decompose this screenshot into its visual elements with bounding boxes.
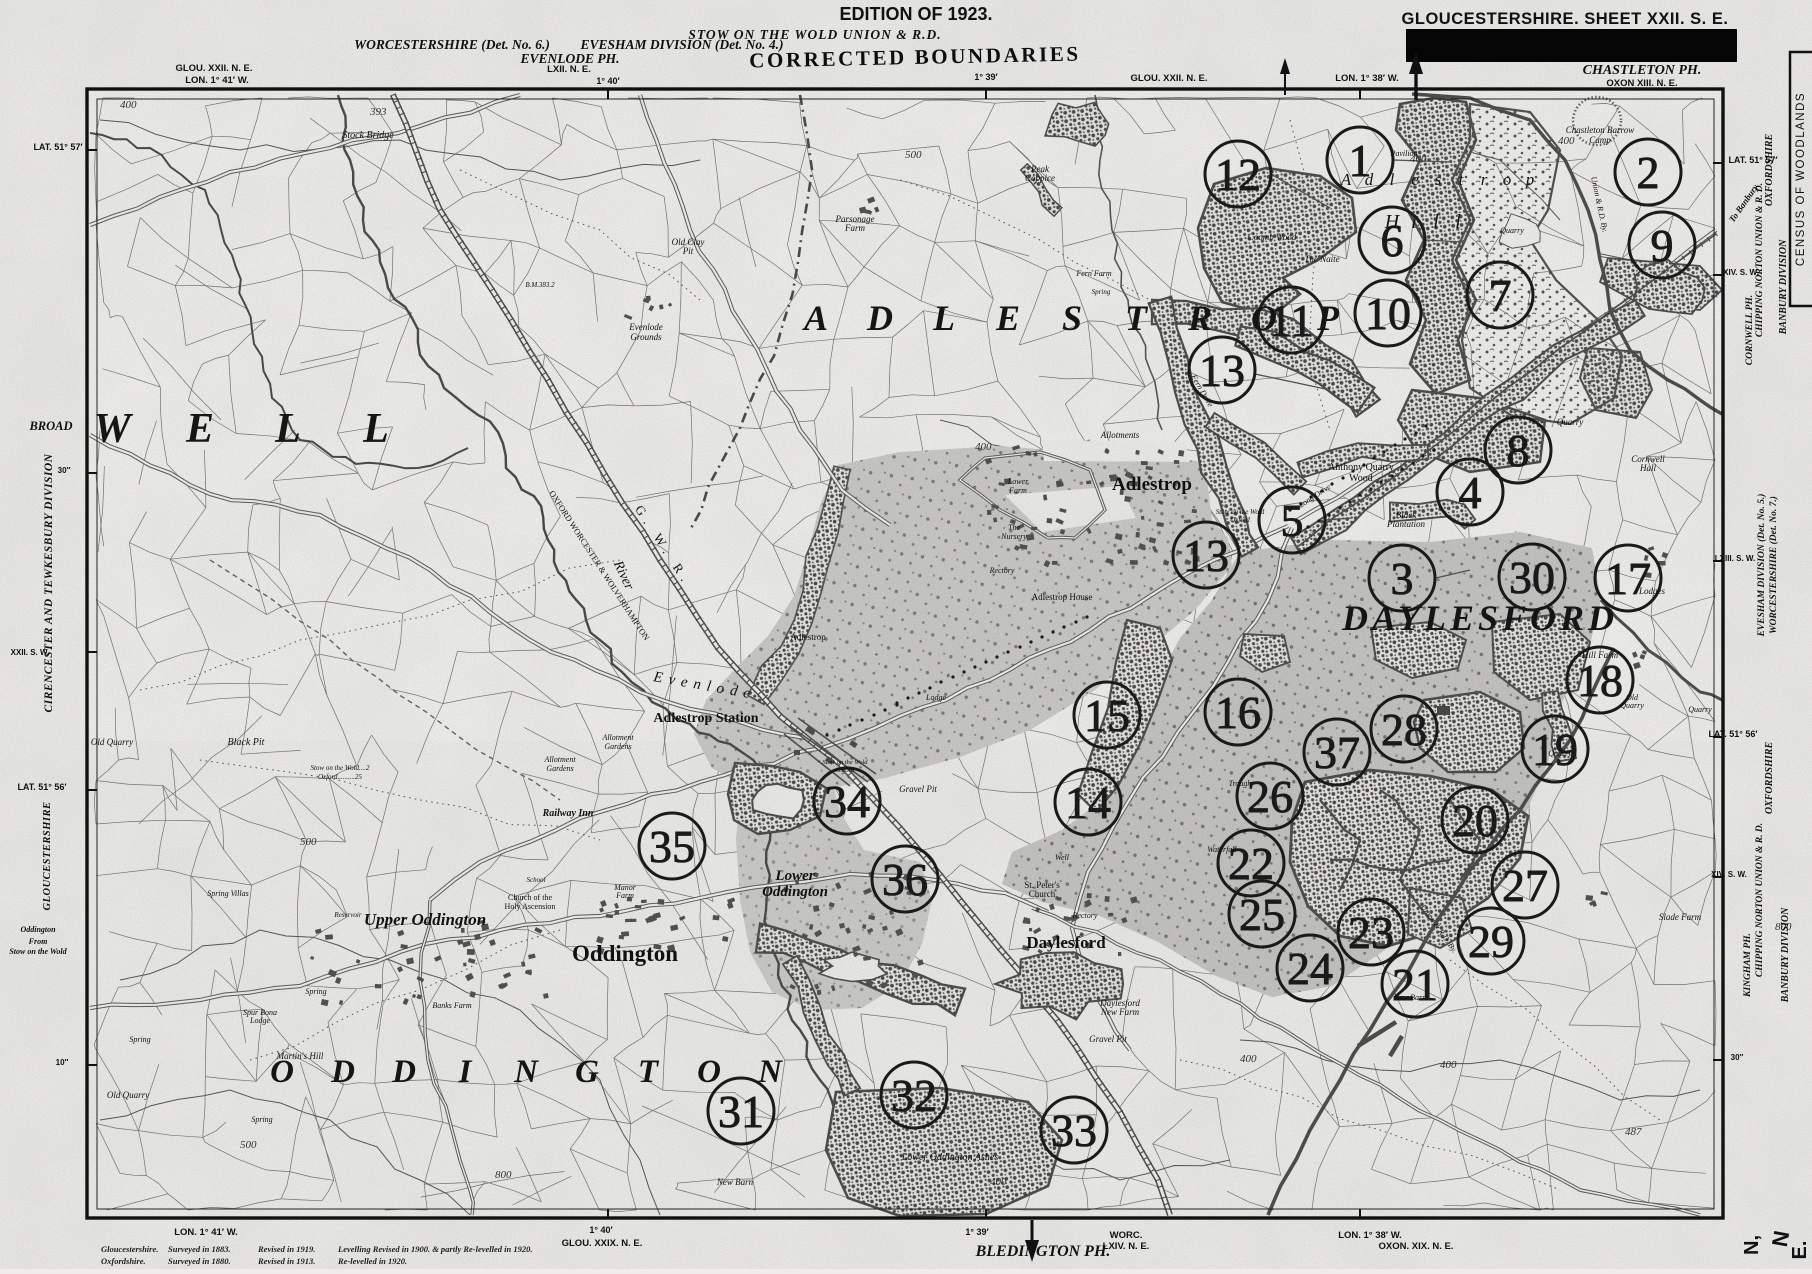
svg-text:Stow on the Wold: Stow on the Wold: [1216, 508, 1265, 516]
svg-text:Gloucestershire.: Gloucestershire.: [101, 1244, 158, 1254]
svg-text:Anthony Quarry: Anthony Quarry: [1328, 462, 1394, 473]
svg-text:D: D: [330, 1054, 355, 1090]
svg-text:Hill Farm: Hill Farm: [1581, 650, 1619, 660]
svg-text:800: 800: [495, 1169, 512, 1181]
svg-text:Chastleton Barrow: Chastleton Barrow: [1566, 125, 1634, 135]
svg-text:Farm: Farm: [615, 891, 634, 900]
svg-text:Oxford: Oxford: [836, 767, 855, 774]
svg-text:Daylesford: Daylesford: [1026, 933, 1106, 952]
svg-text:LON. 1° 41′ W.: LON. 1° 41′ W.: [185, 75, 249, 86]
svg-text:GLOUCESTERSHIRE: GLOUCESTERSHIRE: [42, 801, 53, 910]
svg-text:7: 7: [1489, 270, 1512, 321]
svg-text:I: I: [458, 1054, 473, 1090]
svg-text:p: p: [1525, 170, 1535, 189]
svg-text:Adlestrop Station: Adlestrop Station: [653, 711, 758, 726]
svg-text:Oxford: Oxford: [1230, 516, 1250, 524]
svg-text:OXFORDSHIRE: OXFORDSHIRE: [1764, 134, 1775, 207]
svg-text:Old Quarry: Old Quarry: [91, 737, 133, 747]
svg-text:A: A: [1340, 170, 1352, 189]
svg-text:The: The: [1008, 523, 1020, 532]
svg-text:Oxford..........25: Oxford..........25: [318, 773, 363, 781]
svg-text:XIV. S. W.: XIV. S. W.: [1723, 268, 1759, 277]
svg-text:8: 8: [1507, 425, 1530, 476]
svg-text:BLEDINGTON PH.: BLEDINGTON PH.: [975, 1243, 1111, 1260]
svg-text:Lodges: Lodges: [1638, 586, 1666, 596]
svg-text:Upper Oddington: Upper Oddington: [364, 910, 486, 929]
svg-text:Rectory: Rectory: [1072, 911, 1098, 920]
svg-text:WORC.: WORC.: [1110, 1230, 1143, 1241]
svg-text:BROAD: BROAD: [28, 419, 72, 433]
svg-text:KINGHAM PH.: KINGHAM PH.: [1743, 933, 1753, 998]
svg-text:New Barn: New Barn: [1393, 993, 1426, 1002]
svg-text:DAYLESFORD: DAYLESFORD: [1341, 598, 1618, 638]
svg-text:B.M.383.2: B.M.383.2: [525, 281, 555, 289]
svg-text:27: 27: [1502, 860, 1548, 911]
svg-text:15: 15: [1084, 690, 1130, 741]
svg-text:CHIPPING NORTON UNION & R.: CHIPPING NORTON UNION & R. D.: [1755, 183, 1765, 337]
svg-text:2: 2: [1637, 147, 1660, 198]
svg-text:A: A: [802, 298, 828, 338]
svg-text:21: 21: [1392, 959, 1438, 1010]
svg-text:34: 34: [824, 776, 870, 827]
svg-text:Camp: Camp: [1589, 135, 1611, 145]
svg-text:L: L: [932, 298, 955, 338]
svg-text:LAT. 51° 56′: LAT. 51° 56′: [1708, 729, 1757, 739]
svg-text:XIV. S. W.: XIV. S. W.: [1711, 870, 1747, 879]
svg-text:Levelling Revised in 1900. & p: Levelling Revised in 1900. & partly Re-l…: [337, 1244, 533, 1254]
svg-text:30: 30: [1509, 552, 1555, 603]
svg-text:OXFORDSHIRE: OXFORDSHIRE: [1764, 742, 1775, 815]
svg-text:Quarry: Quarry: [1548, 749, 1572, 758]
svg-text:Stock Bridge: Stock Bridge: [342, 130, 394, 141]
svg-text:Spring: Spring: [129, 1035, 150, 1044]
svg-text:37: 37: [1314, 727, 1360, 778]
svg-text:500: 500: [240, 1139, 257, 1151]
svg-text:Surveyed in 1880.: Surveyed in 1880.: [168, 1256, 231, 1266]
svg-text:Oddington: Oddington: [20, 925, 56, 934]
svg-text:CIRENCESTER AND TEWKESBURY DIV: CIRENCESTER AND TEWKESBURY DIVISION: [43, 453, 55, 712]
svg-text:500: 500: [300, 836, 317, 848]
svg-text:Spring: Spring: [1092, 288, 1111, 296]
svg-text:Rectory: Rectory: [989, 566, 1015, 575]
svg-text:Gardens: Gardens: [546, 764, 573, 773]
svg-text:Allotment: Allotment: [543, 755, 576, 764]
svg-text:OXON XIII. N. E.: OXON XIII. N. E.: [1606, 78, 1677, 89]
svg-text:l: l: [1455, 211, 1461, 233]
svg-text:Spring Villas: Spring Villas: [207, 889, 248, 898]
svg-text:25: 25: [1239, 889, 1285, 940]
svg-text:LXII. N. E.: LXII. N. E.: [547, 64, 591, 75]
svg-text:10: 10: [1365, 288, 1411, 339]
svg-text:1° 39′: 1° 39′: [974, 72, 997, 82]
svg-text:400: 400: [1440, 1059, 1457, 1071]
svg-text:Slade Farm: Slade Farm: [1659, 912, 1702, 922]
svg-text:Church of the: Church of the: [508, 893, 552, 902]
svg-text:i: i: [1411, 211, 1417, 233]
svg-text:393: 393: [369, 106, 387, 118]
svg-text:31: 31: [718, 1086, 764, 1137]
svg-text:400: 400: [975, 441, 992, 453]
svg-text:OXON. XIX. N. E.: OXON. XIX. N. E.: [1379, 1241, 1454, 1252]
svg-text:9: 9: [1651, 220, 1674, 271]
svg-text:Lodge: Lodge: [925, 693, 946, 702]
svg-text:XXII. S. W.: XXII. S. W.: [11, 648, 50, 657]
svg-text:487: 487: [1625, 1126, 1642, 1138]
svg-text:400: 400: [1240, 1053, 1257, 1065]
svg-text:GLOU. XXII. N. E.: GLOU. XXII. N. E.: [175, 63, 252, 74]
svg-text:Adlestrop House: Adlestrop House: [1032, 592, 1093, 602]
svg-text:10″: 10″: [56, 1058, 69, 1067]
svg-text:LON. 1° 41′ W.: LON. 1° 41′ W.: [174, 1227, 238, 1238]
svg-text:N: N: [757, 1054, 783, 1090]
svg-text:O: O: [697, 1054, 721, 1090]
svg-text:CHASTLETON PH.: CHASTLETON PH.: [1583, 63, 1702, 78]
svg-text:T: T: [1125, 298, 1149, 338]
svg-text:400: 400: [1558, 135, 1575, 147]
svg-text:Oddington: Oddington: [572, 941, 678, 966]
svg-text:l: l: [1433, 211, 1439, 233]
svg-text:Plantation: Plantation: [1386, 519, 1425, 529]
svg-text:1° 39′: 1° 39′: [965, 1227, 988, 1237]
svg-text:l: l: [1390, 170, 1395, 189]
svg-text:32: 32: [891, 1070, 937, 1121]
svg-text:WORCESTERSHIRE (Det. No. 7.): WORCESTERSHIRE (Det. No. 7.): [1768, 496, 1779, 634]
svg-text:Allotments: Allotments: [1100, 430, 1140, 440]
svg-text:The Naite: The Naite: [1304, 254, 1339, 264]
svg-text:17: 17: [1605, 553, 1651, 604]
svg-text:Lower Oddington Ashes: Lower Oddington Ashes: [901, 1152, 999, 1163]
svg-text:Church: Church: [1029, 889, 1056, 899]
svg-text:GLOUCESTERSHIRE. SHEET XXII: GLOUCESTERSHIRE. SHEET XXII. S. E.: [1402, 10, 1729, 28]
svg-text:Farm: Farm: [1008, 486, 1027, 495]
svg-text:O: O: [1251, 298, 1277, 338]
svg-text:Re-levelled in 1920.: Re-levelled in 1920.: [337, 1256, 407, 1266]
svg-text:4: 4: [1459, 467, 1482, 518]
svg-text:Quarry: Quarry: [1620, 701, 1644, 710]
svg-text:N,: N,: [1741, 1235, 1763, 1255]
svg-text:BANBURY DIVISION: BANBURY DIVISION: [1780, 907, 1791, 1004]
svg-text:Black Pit: Black Pit: [228, 737, 265, 748]
svg-text:18: 18: [1577, 655, 1623, 706]
svg-text:23: 23: [1348, 907, 1394, 958]
svg-text:Lower: Lower: [1007, 477, 1029, 486]
svg-text:H: H: [1384, 211, 1401, 233]
svg-text:WORCESTERSHIRE (Det. No. 6.): WORCESTERSHIRE (Det. No. 6.): [354, 37, 550, 52]
svg-text:Coomb Wood: Coomb Wood: [1248, 232, 1297, 242]
svg-text:R: R: [1187, 298, 1212, 338]
svg-text:r: r: [1481, 170, 1488, 189]
svg-text:New Farm: New Farm: [1100, 1007, 1140, 1017]
svg-text:Pit: Pit: [682, 246, 694, 256]
svg-text:400: 400: [1410, 153, 1427, 165]
svg-text:From: From: [28, 937, 48, 946]
svg-text:T: T: [638, 1054, 660, 1090]
svg-text:CENSUS OF WOODLANDS: CENSUS OF WOODLANDS: [1795, 92, 1807, 266]
svg-text:CHIPPING NORTON UNION & R.: CHIPPING NORTON UNION & R. D.: [1755, 823, 1765, 977]
svg-text:Allotment: Allotment: [601, 733, 634, 742]
svg-text:20: 20: [1452, 795, 1498, 846]
svg-text:Stow on the Wold: Stow on the Wold: [9, 947, 67, 956]
svg-text:1° 40′: 1° 40′: [596, 76, 619, 86]
svg-text:Trough: Trough: [1229, 779, 1252, 788]
svg-text:Evenlode: Evenlode: [628, 322, 662, 332]
svg-text:36: 36: [882, 854, 928, 905]
svg-text:28: 28: [1381, 704, 1427, 755]
svg-text:12: 12: [1215, 149, 1261, 200]
svg-text:E: E: [995, 298, 1020, 338]
svg-text:Lodge: Lodge: [249, 1016, 270, 1025]
svg-text:LON. 1° 38′ W.: LON. 1° 38′ W.: [1338, 1230, 1402, 1241]
svg-text:3: 3: [1391, 553, 1414, 604]
svg-text:D: D: [866, 298, 893, 338]
svg-text:EVESHAM DIVISION (Det. No. 5: EVESHAM DIVISION (Det. No. 5.): [1756, 494, 1767, 638]
svg-text:Fern Farm: Fern Farm: [1075, 269, 1112, 278]
svg-text:E: E: [185, 406, 214, 452]
svg-text:Coppice: Coppice: [1025, 173, 1055, 183]
svg-text:L: L: [362, 406, 389, 452]
svg-text:Oddington: Oddington: [762, 884, 828, 900]
svg-text:24: 24: [1287, 943, 1333, 994]
svg-text:Old Quarry: Old Quarry: [107, 1090, 149, 1100]
svg-text:CORNWELL PH.: CORNWELL PH.: [1745, 295, 1755, 365]
svg-text:16: 16: [1215, 687, 1261, 738]
svg-text:Reservoir: Reservoir: [333, 911, 361, 919]
svg-text:14: 14: [1065, 777, 1111, 828]
svg-text:400: 400: [120, 99, 137, 111]
svg-text:33: 33: [1051, 1105, 1097, 1156]
svg-text:13: 13: [1183, 530, 1229, 581]
svg-text:30″: 30″: [58, 466, 71, 475]
svg-text:Lower: Lower: [774, 868, 814, 884]
svg-text:D: D: [391, 1054, 416, 1090]
svg-text:30″: 30″: [1731, 1053, 1744, 1062]
svg-text:N: N: [513, 1054, 539, 1090]
svg-text:Waterfall: Waterfall: [1207, 845, 1237, 854]
svg-text:Spring: Spring: [251, 1115, 272, 1124]
svg-text:500: 500: [905, 149, 922, 161]
svg-text:Revised in 1919.: Revised in 1919.: [257, 1244, 315, 1254]
svg-text:School: School: [526, 876, 545, 884]
svg-text:Gravel Pit: Gravel Pit: [899, 784, 937, 794]
svg-text:W: W: [93, 406, 133, 452]
svg-text:G: G: [575, 1054, 599, 1090]
svg-text:Oxfordshire.: Oxfordshire.: [101, 1256, 146, 1266]
svg-text:LXIII. S. W.: LXIII. S. W.: [1715, 554, 1755, 563]
svg-text:Quarry: Quarry: [1557, 417, 1584, 427]
svg-text:P: P: [1316, 298, 1340, 338]
svg-text:Adlestrop: Adlestrop: [790, 632, 826, 642]
svg-text:S: S: [1062, 298, 1082, 338]
svg-text:Revised in 1913.: Revised in 1913.: [257, 1256, 315, 1266]
svg-text:Wood: Wood: [1349, 473, 1373, 484]
svg-text:Spring: Spring: [305, 987, 326, 996]
svg-text:1° 40′: 1° 40′: [589, 1225, 612, 1235]
svg-text:Hall: Hall: [1639, 463, 1657, 473]
svg-text:Well: Well: [1055, 853, 1070, 862]
svg-text:LAT. 51° 57′: LAT. 51° 57′: [1728, 155, 1777, 165]
svg-text:GLOU. XXII. N. E.: GLOU. XXII. N. E.: [1130, 73, 1207, 84]
svg-text:GLOU. XXIX. N. E.: GLOU. XXIX. N. E.: [562, 1238, 643, 1249]
svg-text:400: 400: [990, 1176, 1007, 1188]
svg-text:EDITION OF 1923.: EDITION OF 1923.: [839, 4, 992, 24]
svg-text:Stow on the Wold: Stow on the Wold: [822, 759, 868, 766]
svg-text:Railway Inn: Railway Inn: [542, 808, 594, 819]
svg-text:Adlestrop: Adlestrop: [1112, 474, 1192, 495]
svg-text:Quarry: Quarry: [1500, 226, 1524, 235]
svg-text:Stow on the Wold....2: Stow on the Wold....2: [310, 764, 370, 772]
svg-text:Grounds: Grounds: [630, 332, 662, 342]
svg-text:LAT. 51° 56′: LAT. 51° 56′: [17, 782, 66, 792]
svg-text:Martin's Hill: Martin's Hill: [276, 1051, 324, 1061]
svg-text:o: o: [1503, 170, 1512, 189]
svg-text:Gardens: Gardens: [604, 742, 631, 751]
svg-text:Gravel Pit: Gravel Pit: [1089, 1034, 1127, 1044]
svg-text:Nursery: Nursery: [1000, 532, 1027, 541]
svg-text:BANBURY DIVISION: BANBURY DIVISION: [1778, 239, 1789, 336]
svg-text:e: e: [1411, 170, 1419, 189]
svg-text:s: s: [1435, 170, 1442, 189]
svg-text:Banks Farm: Banks Farm: [432, 1001, 472, 1010]
svg-text:Farm: Farm: [844, 223, 866, 233]
svg-text:d: d: [1365, 170, 1374, 189]
svg-text:Surveyed in 1883.: Surveyed in 1883.: [168, 1244, 231, 1254]
svg-text:29: 29: [1468, 916, 1514, 967]
svg-text:Quarry: Quarry: [1688, 705, 1712, 714]
svg-text:LAT. 51° 57′: LAT. 51° 57′: [33, 142, 82, 152]
svg-text:26: 26: [1247, 771, 1293, 822]
svg-text:New Barn: New Barn: [716, 1177, 754, 1187]
svg-text:L: L: [274, 406, 301, 452]
svg-text:E.: E.: [1789, 1241, 1811, 1260]
svg-text:Holy Ascension: Holy Ascension: [505, 902, 556, 911]
svg-text:35: 35: [649, 821, 695, 872]
svg-text:LON. 1° 38′ W.: LON. 1° 38′ W.: [1335, 73, 1399, 84]
